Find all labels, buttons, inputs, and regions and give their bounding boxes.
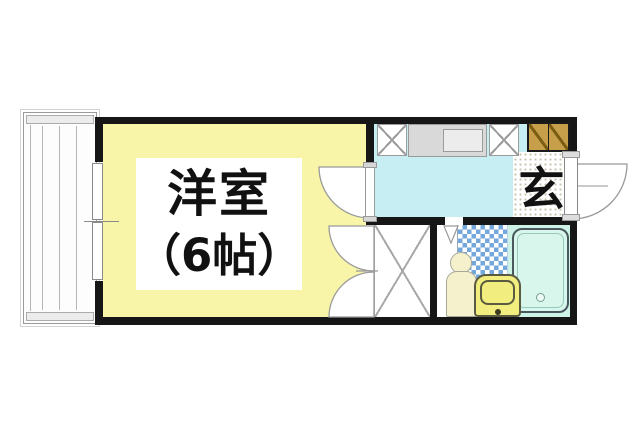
entrance-door-swing <box>572 164 627 219</box>
washbasin-bowl <box>480 280 515 305</box>
balcony-divider-line <box>42 126 43 310</box>
shoe-cabinet <box>527 122 570 152</box>
window-pane-bottom <box>92 222 103 280</box>
main-room-label-box: 洋室 （6帖） <box>136 158 302 290</box>
appliance-space-right <box>489 124 519 156</box>
washbasin <box>474 274 521 317</box>
wall-closet-bathroom <box>430 217 437 325</box>
toilet-bowl <box>446 271 477 317</box>
entrance-door-cap-top <box>562 151 580 158</box>
window-pane-top <box>92 163 103 220</box>
wall-bottom <box>95 317 577 325</box>
wall-right-upper <box>570 117 577 154</box>
main-room-size: （6帖） <box>136 226 302 286</box>
balcony-top-rail <box>26 115 94 124</box>
balcony <box>23 112 97 324</box>
kitchen-counter <box>408 124 487 157</box>
closet-floor <box>374 225 430 317</box>
main-room-name: 洋室 <box>167 162 271 226</box>
wall-room-hall-divider <box>366 117 374 167</box>
wall-left-lower <box>95 281 103 325</box>
wall-top <box>95 117 577 124</box>
room-door-cap-top <box>363 162 377 168</box>
room-door-cap-bottom <box>363 216 377 222</box>
balcony-side-rail-line <box>30 125 31 311</box>
kitchen-sink <box>443 129 483 152</box>
shoe-cabinet-left-door <box>529 124 549 150</box>
room-door-leaf <box>365 166 375 219</box>
wall-left-upper <box>95 117 103 162</box>
washbasin-faucet-dot <box>495 309 501 315</box>
entrance-label: 玄 <box>513 158 570 214</box>
balcony-bottom-rail <box>26 312 94 321</box>
appliance-space-left <box>377 124 407 156</box>
window-center-mark <box>84 221 119 222</box>
wall-right-lower <box>570 219 577 325</box>
shoe-cabinet-right-door <box>549 124 569 150</box>
floor-plan: 洋室 （6帖） 玄 <box>0 0 640 425</box>
balcony-divider-line <box>76 126 77 310</box>
bathtub-drain <box>536 293 545 302</box>
balcony-divider-line <box>59 126 60 310</box>
entrance-door-cap-bottom <box>562 214 580 221</box>
